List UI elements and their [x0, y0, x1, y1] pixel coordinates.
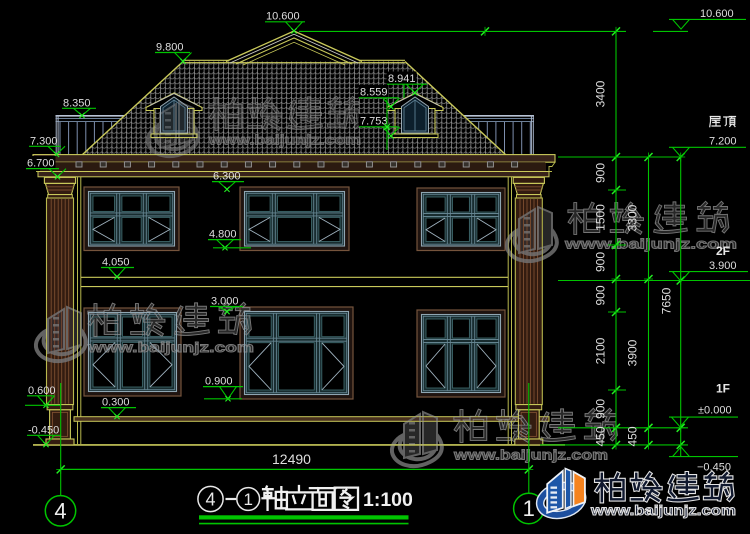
svg-text:3400: 3400	[594, 80, 608, 107]
svg-text:8.559: 8.559	[360, 87, 388, 99]
svg-text:7650: 7650	[660, 287, 674, 314]
svg-text:www.baijunjz.com: www.baijunjz.com	[208, 133, 361, 148]
svg-text:4.050: 4.050	[102, 257, 130, 269]
svg-text:www.baijunjz.com: www.baijunjz.com	[564, 236, 737, 252]
svg-text:450: 450	[594, 426, 608, 446]
svg-text:www.baijunjz.com: www.baijunjz.com	[590, 502, 736, 518]
svg-text:www.baijunjz.com: www.baijunjz.com	[453, 448, 608, 463]
svg-text:10.600: 10.600	[266, 11, 300, 23]
svg-text:3.900: 3.900	[709, 260, 737, 272]
svg-text:1: 1	[243, 490, 252, 509]
svg-text:2100: 2100	[594, 337, 608, 364]
svg-text:1F: 1F	[716, 382, 730, 396]
svg-text:3300: 3300	[626, 204, 640, 231]
svg-text:1500: 1500	[594, 204, 608, 231]
svg-text:0.300: 0.300	[102, 397, 130, 409]
svg-text:450: 450	[626, 426, 640, 446]
svg-text:1: 1	[523, 496, 535, 521]
svg-text:1:100: 1:100	[363, 489, 413, 511]
svg-text:3.000: 3.000	[211, 296, 239, 308]
svg-text:6.700: 6.700	[27, 158, 55, 170]
svg-text:7.753: 7.753	[360, 116, 388, 128]
svg-text:8.350: 8.350	[63, 98, 91, 110]
svg-text:4: 4	[54, 499, 66, 524]
svg-text:6.300: 6.300	[213, 171, 241, 183]
svg-text:±0.000: ±0.000	[698, 405, 732, 417]
svg-text:www.baijunjz.com: www.baijunjz.com	[87, 340, 254, 355]
svg-text:12490: 12490	[272, 451, 311, 467]
svg-text:900: 900	[594, 163, 608, 183]
svg-text:900: 900	[594, 285, 608, 305]
svg-text:900: 900	[594, 399, 608, 419]
svg-text:4: 4	[205, 490, 215, 510]
svg-text:0.900: 0.900	[205, 376, 233, 388]
svg-text:4.800: 4.800	[209, 229, 237, 241]
svg-text:2F: 2F	[716, 244, 730, 258]
svg-text:10.600: 10.600	[700, 8, 734, 20]
svg-text:8.941: 8.941	[388, 73, 416, 85]
svg-text:9.800: 9.800	[156, 42, 184, 54]
svg-text:3900: 3900	[626, 339, 640, 366]
svg-text:7.200: 7.200	[709, 136, 737, 148]
svg-text:0.600: 0.600	[28, 385, 56, 397]
svg-text:900: 900	[594, 252, 608, 272]
